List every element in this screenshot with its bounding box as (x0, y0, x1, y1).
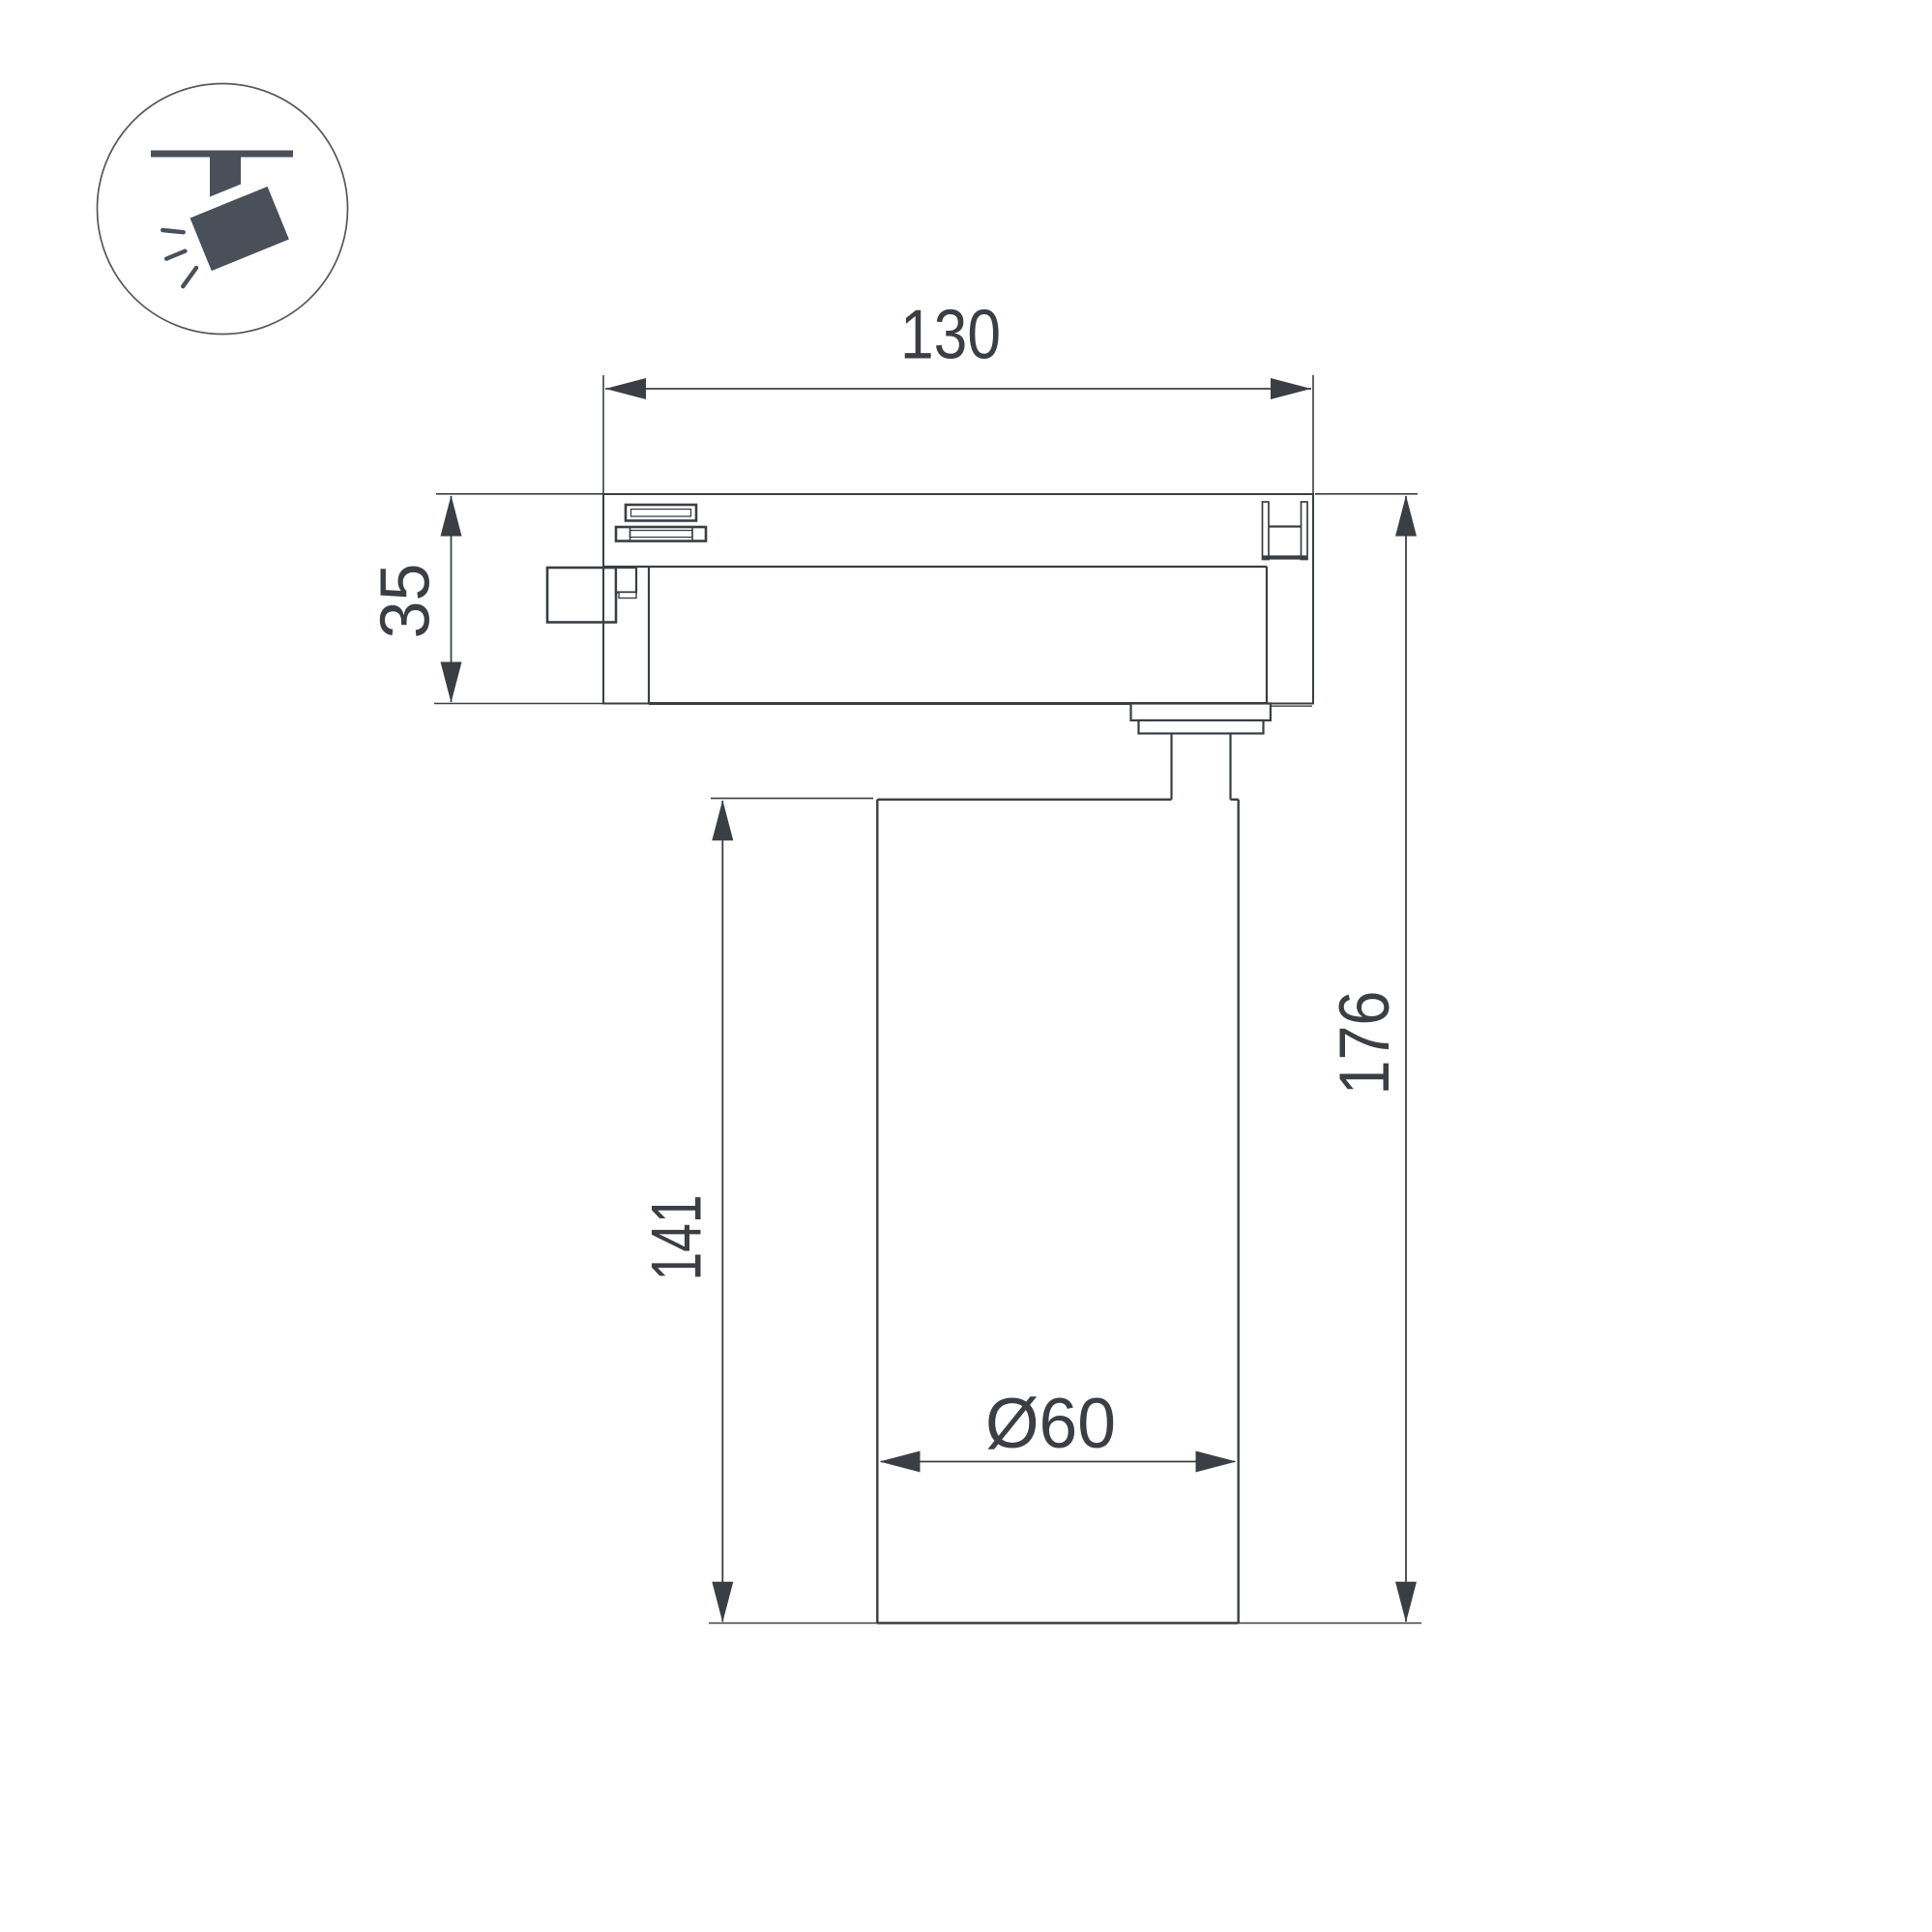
svg-text:35: 35 (367, 564, 445, 639)
svg-text:176: 176 (1326, 991, 1404, 1096)
svg-text:141: 141 (638, 1195, 717, 1281)
svg-text:Ø60: Ø60 (985, 1385, 1116, 1463)
svg-text:130: 130 (900, 297, 1001, 374)
